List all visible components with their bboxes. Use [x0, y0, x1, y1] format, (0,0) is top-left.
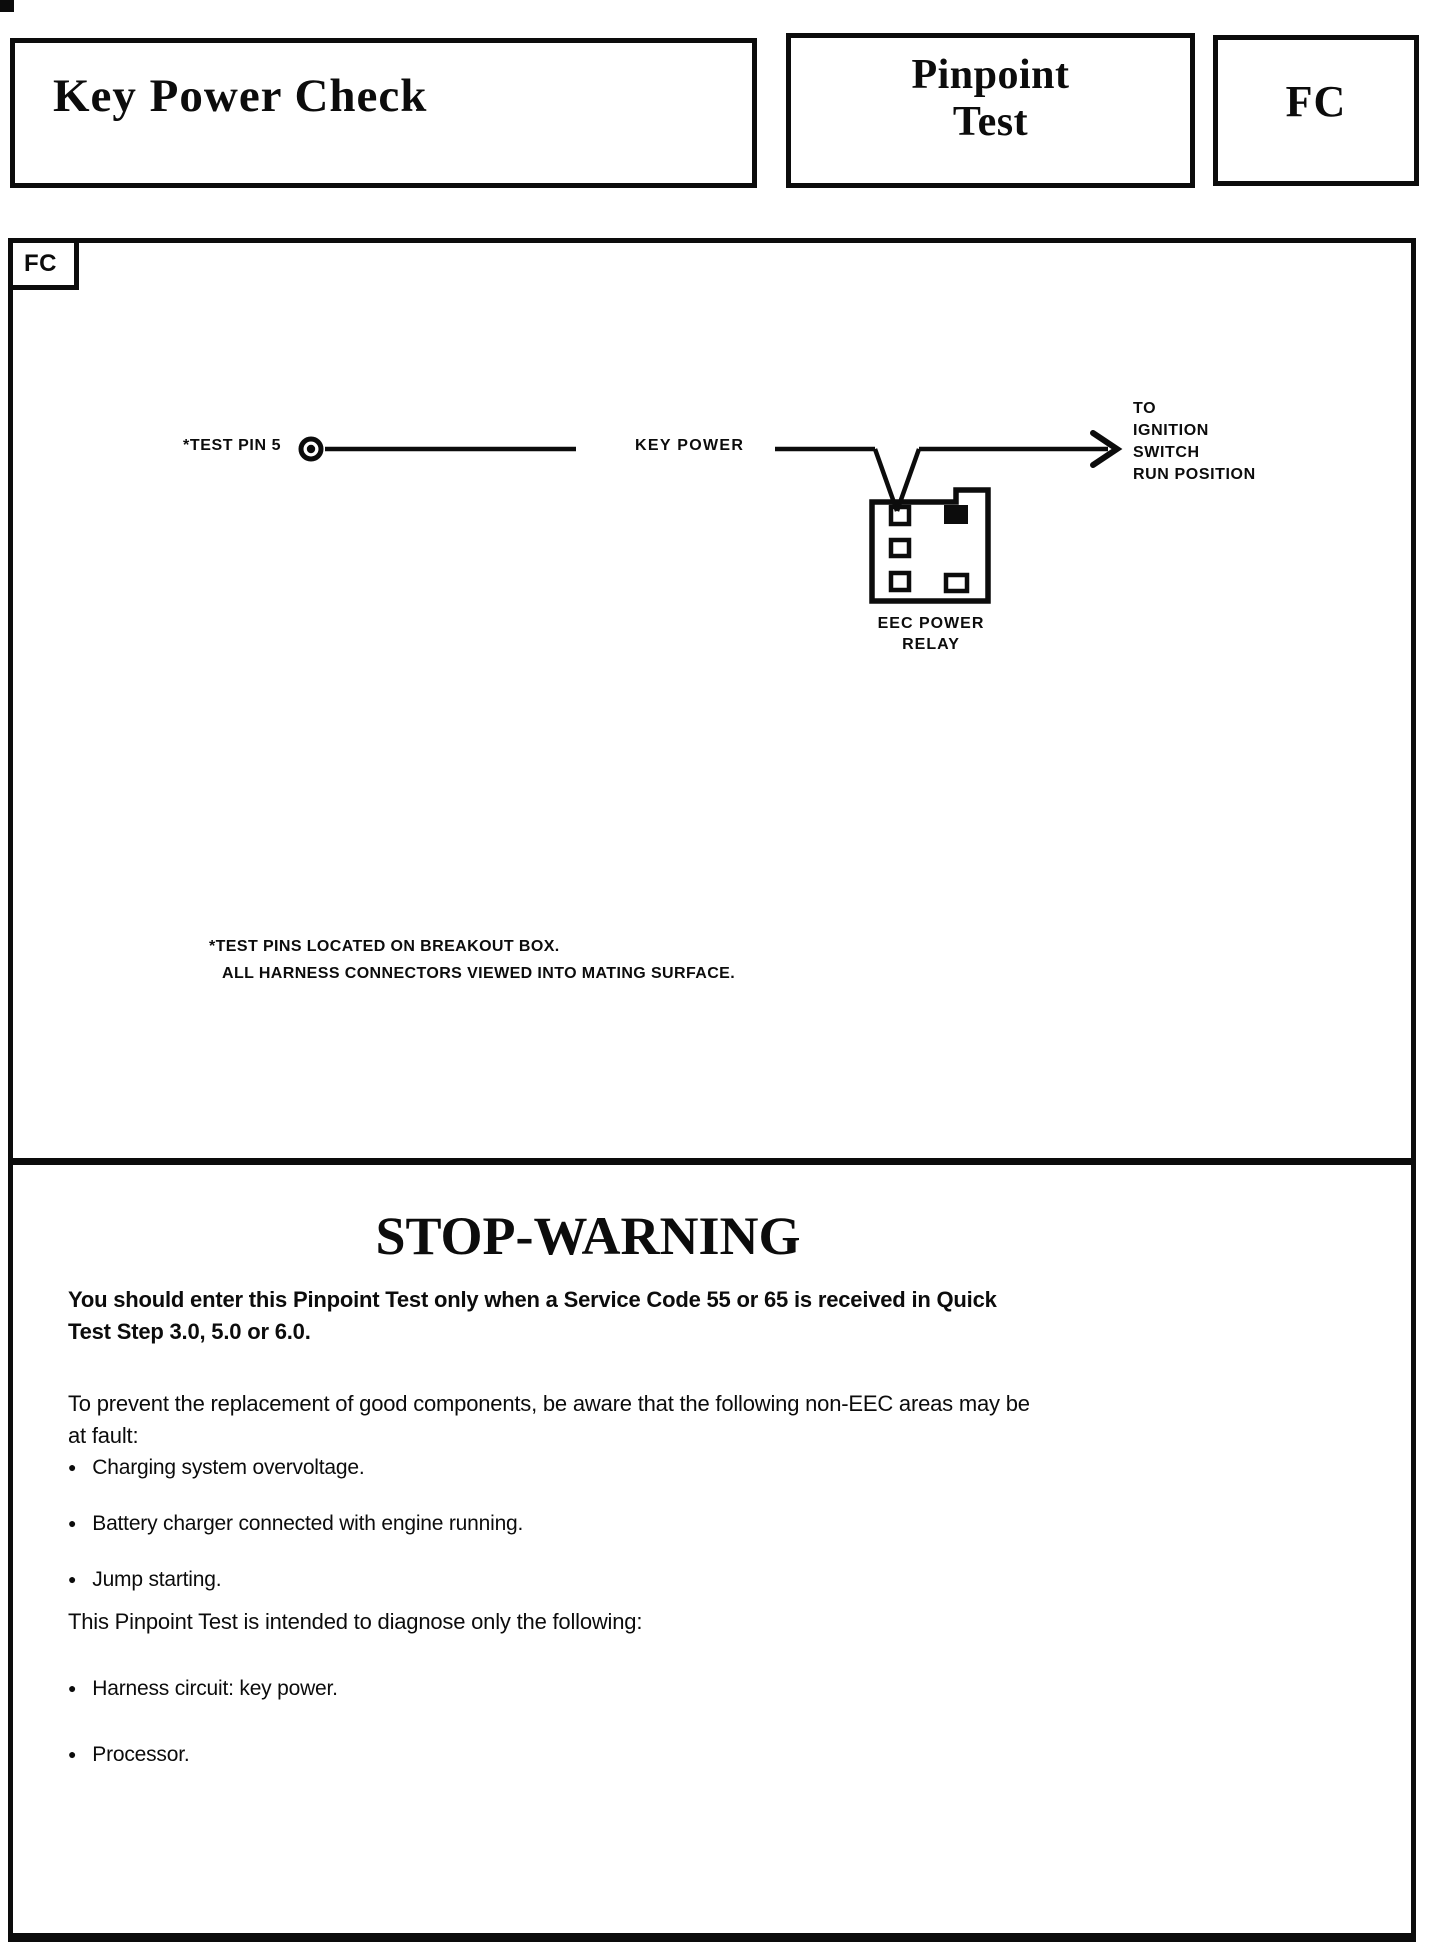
test-code-box: FC — [1213, 35, 1419, 186]
diagnose-list-item: ●Harness circuit: key power. — [68, 1673, 338, 1704]
relay-pin — [891, 573, 909, 590]
bullet-icon: ● — [68, 1508, 76, 1538]
bullet-icon: ● — [68, 1673, 76, 1703]
warning-intro-line2: Test Step 3.0, 5.0 or 6.0. — [68, 1316, 1078, 1348]
diagnose-list-item: ●Processor. — [68, 1739, 189, 1770]
fault-list-item: ●Battery charger connected with engine r… — [68, 1508, 523, 1539]
warning-title: STOP-WARNING — [13, 1205, 1163, 1267]
wiring-diagram — [13, 243, 1411, 1158]
destination-line: TO — [1133, 398, 1256, 420]
warning-prevent-line2: at fault: — [68, 1420, 1108, 1452]
fault-item-text: Jump starting. — [92, 1568, 221, 1591]
warning-prevent-line1: To prevent the replacement of good compo… — [68, 1388, 1108, 1420]
warning-prevent-text: To prevent the replacement of good compo… — [68, 1388, 1108, 1452]
fault-item-text: Charging system overvoltage. — [92, 1456, 364, 1479]
destination-line: RUN POSITION — [1133, 464, 1256, 486]
relay-pin-filled — [944, 505, 968, 524]
pinpoint-test-box: Pinpoint Test — [786, 33, 1195, 188]
relay-caption-line1: EEC POWER — [821, 613, 1041, 634]
bullet-icon: ● — [68, 1564, 76, 1594]
pinpoint-test-line1: Pinpoint — [791, 52, 1190, 99]
page-title: Key Power Check — [53, 70, 427, 122]
destination-line: SWITCH — [1133, 442, 1256, 464]
relay-pin — [946, 575, 967, 591]
fault-item-text: Battery charger connected with engine ru… — [92, 1512, 523, 1535]
wire-label: KEY POWER — [635, 437, 744, 455]
diagnose-item-text: Processor. — [92, 1743, 189, 1766]
manual-page: Key Power Check Pinpoint Test FC FC — [0, 0, 1440, 1950]
relay-pin — [891, 540, 909, 556]
warning-panel: STOP-WARNING You should enter this Pinpo… — [8, 1158, 1416, 1942]
diagram-panel: FC *TEST PIN 5 KEY POWER — [8, 238, 1416, 1158]
scan-artifact — [0, 0, 14, 12]
warning-intro: You should enter this Pinpoint Test only… — [68, 1284, 1078, 1348]
warning-intro-line1: You should enter this Pinpoint Test only… — [68, 1284, 1078, 1316]
test-code: FC — [1286, 77, 1347, 126]
footnote-line1: *TEST PINS LOCATED ON BREAKOUT BOX. — [209, 938, 560, 956]
bullet-icon: ● — [68, 1739, 76, 1769]
diagnose-intro: This Pinpoint Test is intended to diagno… — [68, 1606, 1108, 1638]
fault-list-item: ●Charging system overvoltage. — [68, 1452, 364, 1483]
bullet-icon: ● — [68, 1452, 76, 1482]
relay-pin — [891, 507, 909, 524]
test-pin-label: *TEST PIN 5 — [183, 437, 281, 455]
test-pin-symbol-dot — [307, 445, 315, 453]
destination-line: IGNITION — [1133, 420, 1256, 442]
relay-caption-line2: RELAY — [821, 634, 1041, 655]
page-title-box: Key Power Check — [10, 38, 757, 188]
destination-label: TO IGNITION SWITCH RUN POSITION — [1133, 398, 1256, 486]
fault-list-item: ●Jump starting. — [68, 1564, 221, 1595]
footnote-line2: ALL HARNESS CONNECTORS VIEWED INTO MATIN… — [222, 965, 735, 983]
relay-caption: EEC POWER RELAY — [821, 613, 1041, 655]
diagnose-item-text: Harness circuit: key power. — [92, 1677, 338, 1700]
pinpoint-test-line2: Test — [791, 99, 1190, 146]
